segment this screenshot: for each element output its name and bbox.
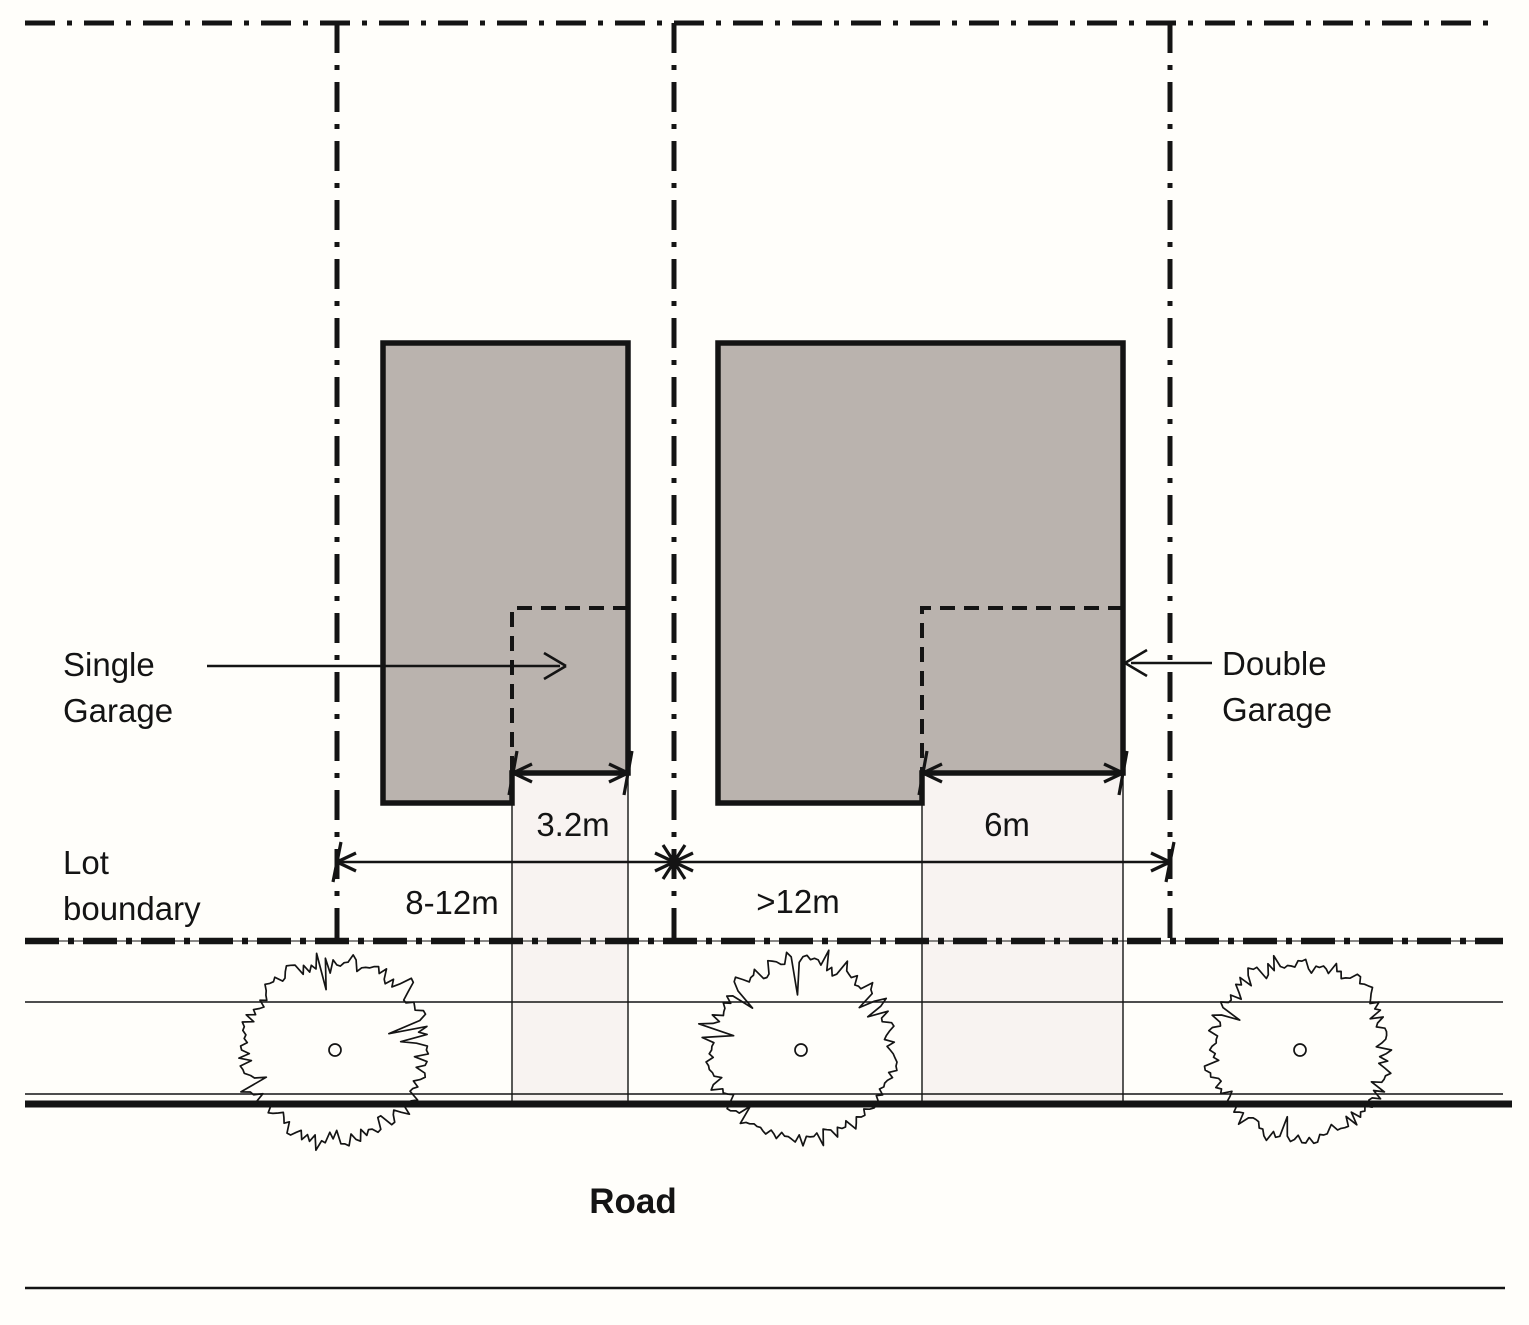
- site-plan-canvas: Single Garage Double Garage Lot boundary…: [0, 0, 1529, 1325]
- lot-boundary-label-line1: Lot: [63, 844, 109, 881]
- narrow-lot-frontage-dimension: 8-12m: [405, 884, 499, 921]
- tree-icon: [1205, 956, 1392, 1144]
- double-garage-width-dimension: 6m: [984, 806, 1030, 843]
- lot-boundary-label-line2: boundary: [63, 890, 201, 927]
- tree-trunk-icon: [795, 1044, 807, 1056]
- double-garage-label-line2: Garage: [1222, 691, 1332, 728]
- single-garage-label-line2: Garage: [63, 692, 173, 729]
- single-garage-width-dimension: 3.2m: [536, 806, 609, 843]
- tree-icon: [239, 953, 428, 1150]
- double-garage-label-line1: Double: [1222, 645, 1327, 682]
- single-garage-label-line1: Single: [63, 646, 155, 683]
- wide-lot-frontage-dimension: >12m: [756, 883, 839, 920]
- single-garage-house: [383, 343, 628, 803]
- site-plan-diagram: Single Garage Double Garage Lot boundary…: [0, 0, 1529, 1325]
- tree-trunk-icon: [1294, 1044, 1306, 1056]
- tree-trunk-icon: [329, 1044, 341, 1056]
- tree-icon: [699, 950, 897, 1146]
- road-label: Road: [589, 1182, 677, 1221]
